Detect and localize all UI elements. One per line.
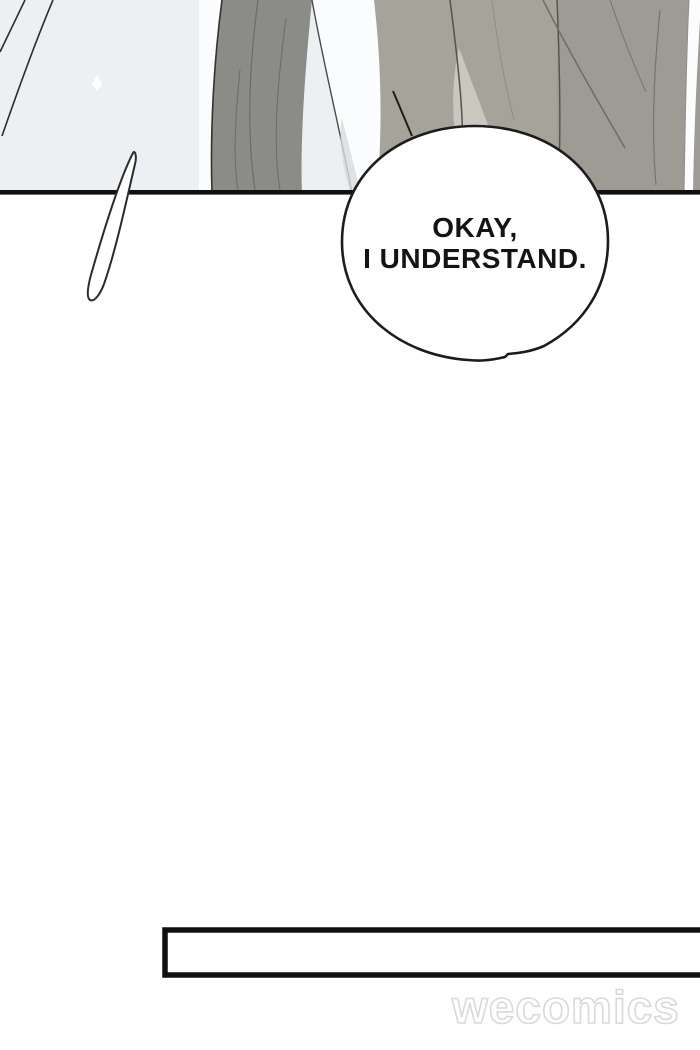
speech-bubble-text: OKAY, I UNDERSTAND. bbox=[342, 212, 608, 274]
empty-caption-box bbox=[165, 930, 700, 975]
bubble-line-1: OKAY, bbox=[342, 212, 608, 243]
comic-page: OKAY, I UNDERSTAND. wecomics bbox=[0, 0, 700, 1050]
suit-right-band bbox=[557, 0, 700, 193]
bubble-line-2: I UNDERSTAND. bbox=[342, 243, 608, 274]
comic-panel-artwork bbox=[0, 0, 700, 1050]
page-lower-white bbox=[0, 193, 700, 1050]
suit-left-band bbox=[211, 0, 312, 193]
watermark-wecomics-logo: wecomics bbox=[452, 980, 680, 1034]
